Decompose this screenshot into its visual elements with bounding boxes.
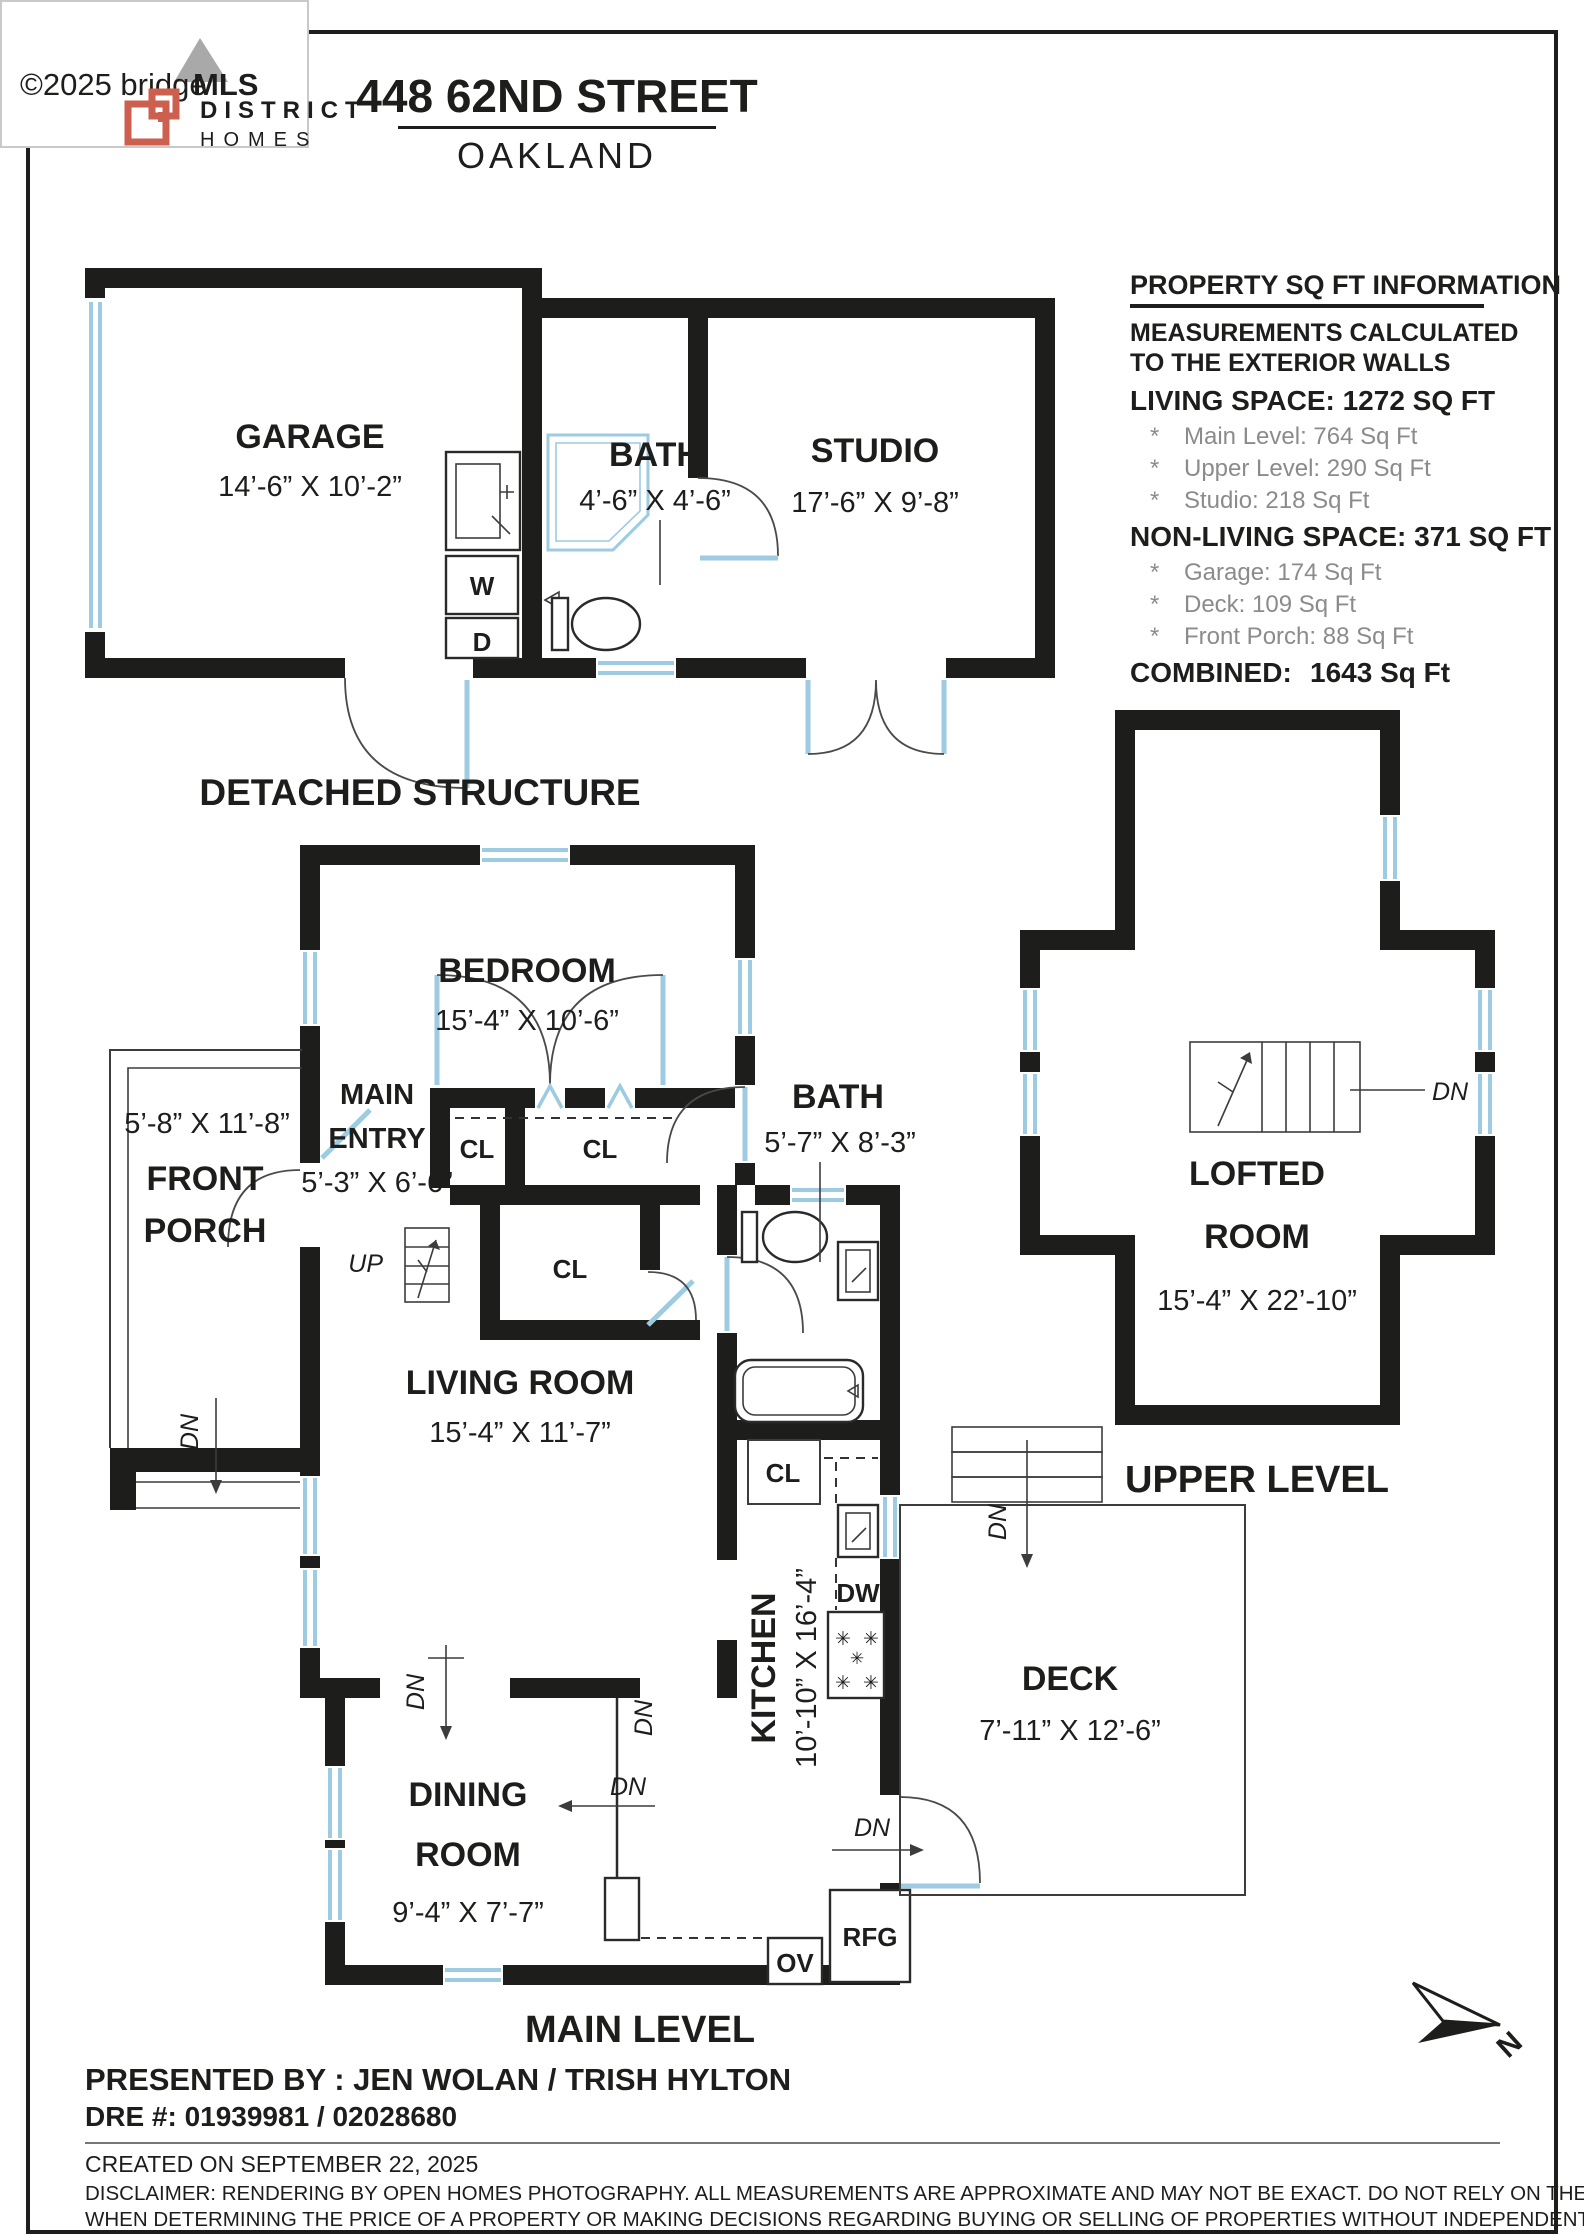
brand-name: DISTRICT [200, 97, 367, 124]
living-dn-label: DN [402, 1673, 430, 1710]
living-space-title: LIVING SPACE: 1272 SQ FT [1130, 385, 1495, 416]
garage-dims: 14’-6” X 10’-2” [218, 471, 402, 503]
detached-bath-name: BATH [609, 436, 701, 474]
nonliving-item: Front Porch: 88 Sq Ft [1184, 623, 1414, 650]
created-on: CREATED ON SEPTEMBER 22, 2025 [85, 2151, 478, 2177]
svg-text:✳: ✳ [863, 1672, 879, 1694]
lofted-room-dims: 15’-4” X 22’-10” [1157, 1285, 1357, 1317]
dre-number: DRE #: 01939981 / 02028680 [85, 2101, 457, 2132]
bullet: * [1150, 487, 1159, 514]
toilet-icon [552, 598, 640, 650]
north-arrow-icon: N [1413, 1983, 1529, 2064]
up-label: UP [348, 1250, 383, 1278]
bath-sink-icon [838, 1242, 878, 1300]
porch-dims: 5’-8” X 11’-8” [124, 1108, 289, 1140]
info-note-1: MEASUREMENTS CALCULATED [1130, 319, 1518, 347]
studio-dims: 17’-6” X 9’-8” [791, 487, 959, 519]
svg-text:✳: ✳ [850, 1649, 864, 1669]
page-subtitle: OAKLAND [457, 135, 657, 176]
porch-name-2: PORCH [144, 1212, 267, 1250]
dishwasher-label: DW [836, 1578, 880, 1608]
kitchen-step-dn-label: DN [630, 1699, 658, 1736]
dining-dn-label: DN [610, 1773, 647, 1801]
dining-name-2: ROOM [415, 1836, 521, 1874]
porch-dn-label: DN [176, 1413, 204, 1450]
bathtub-icon [735, 1360, 863, 1422]
footer: PRESENTED BY : JEN WOLAN / TRISH HYLTON … [85, 2062, 1584, 2231]
bullet: * [1150, 591, 1159, 618]
info-title-underline [1130, 304, 1484, 308]
entry-stair-icon [405, 1228, 449, 1302]
upper-dn-label: DN [1432, 1078, 1469, 1106]
main-level-plan: ✳ ✳ ✳ ✳ ✳ [110, 845, 1245, 2051]
deck-name: DECK [1022, 1660, 1119, 1698]
living-item: Main Level: 764 Sq Ft [1184, 423, 1418, 450]
lofted-room-name-1: LOFTED [1189, 1155, 1325, 1193]
closet-door-arc [648, 1272, 696, 1320]
bullet: * [1150, 423, 1159, 450]
main-bath-name: BATH [792, 1078, 884, 1116]
entry-name-1: MAIN [340, 1079, 414, 1111]
laundry-sink-icon [446, 452, 520, 550]
footer-divider [85, 2142, 1500, 2144]
bridgemls-watermark: ©2025 bridge MLS [1, 1, 308, 147]
svg-text:✳: ✳ [835, 1672, 851, 1694]
nonliving-item: Garage: 174 Sq Ft [1184, 559, 1382, 586]
combined-value: 1643 Sq Ft [1310, 657, 1450, 688]
closet-label: CL [583, 1134, 618, 1164]
closet-label: CL [553, 1254, 588, 1284]
upper-level-plan: DN LOFTED ROOM 15’-4” X 22’-10” UPPER LE… [1020, 710, 1495, 1501]
main-level-caption: MAIN LEVEL [525, 2009, 755, 2051]
dining-dims: 9’-4” X 7’-7” [392, 1897, 544, 1929]
north-label: N [1491, 2025, 1529, 2064]
deck-dims: 7’-11” X 12’-6” [979, 1715, 1161, 1747]
detached-structure-plan: W D GARAGE 14’-6” X 10’-2” BATH 4’-6” X … [85, 268, 1055, 813]
svg-text:✳: ✳ [835, 1628, 851, 1650]
bath-door-arc [727, 1257, 803, 1333]
living-item: Upper Level: 290 Sq Ft [1184, 455, 1431, 482]
entry-dims: 5’-3” X 6’-6” [301, 1167, 453, 1199]
upper-level-caption: UPPER LEVEL [1125, 1459, 1389, 1501]
kitchen-sink-icon [838, 1505, 878, 1557]
closet-label: CL [766, 1458, 801, 1488]
svg-text:✳: ✳ [863, 1628, 879, 1650]
pony-wall [605, 1878, 639, 1940]
lofted-room-name-2: ROOM [1204, 1218, 1310, 1256]
detached-bath-dims: 4’-6” X 4’-6” [579, 485, 731, 517]
combined-label: COMBINED: [1130, 657, 1292, 688]
upper-walls [1020, 710, 1495, 1425]
entry-name-2: ENTRY [328, 1123, 425, 1155]
disclaimer-line-1: DISCLAIMER: RENDERING BY OPEN HOMES PHOT… [85, 2182, 1584, 2205]
bullet: * [1150, 559, 1159, 586]
bullet: * [1150, 455, 1159, 482]
bedroom-dims: 15’-4” X 10’-6” [435, 1005, 619, 1037]
info-title: PROPERTY SQ FT INFORMATION [1130, 270, 1561, 300]
bullet: * [1150, 623, 1159, 650]
oven-label: OV [776, 1948, 814, 1978]
studio-french-doors [808, 680, 944, 754]
living-dims: 15’-4” X 11’-7” [429, 1417, 611, 1449]
stove-icon: ✳ ✳ ✳ ✳ ✳ [828, 1612, 884, 1698]
upper-stairs-icon [1190, 1042, 1425, 1132]
porch-name-1: FRONT [146, 1160, 263, 1198]
living-item: Studio: 218 Sq Ft [1184, 487, 1370, 514]
detached-caption: DETACHED STRUCTURE [199, 772, 640, 813]
studio-name: STUDIO [811, 432, 939, 470]
upper-windows [1020, 815, 1495, 1136]
nonliving-space-title: NON-LIVING SPACE: 371 SQ FT [1130, 521, 1551, 552]
dining-name-1: DINING [409, 1776, 528, 1814]
toilet-icon [742, 1212, 827, 1262]
kitchen-dims: 10’-10” X 16’-4” [791, 1568, 823, 1768]
washer-label: W [470, 571, 495, 601]
closet-label: CL [460, 1134, 495, 1164]
info-note-2: TO THE EXTERIOR WALLS [1130, 349, 1450, 377]
page-title: 448 62ND STREET [356, 70, 757, 122]
nonliving-item: Deck: 109 Sq Ft [1184, 591, 1356, 618]
deck-door-dn-label: DN [854, 1814, 891, 1842]
presented-by: PRESENTED BY : JEN WOLAN / TRISH HYLTON [85, 2062, 791, 2097]
main-bath-dims: 5’-7” X 8’-3” [764, 1127, 916, 1159]
title-underline [398, 126, 716, 129]
brand-sub: HOMES [200, 129, 318, 151]
floorplan-flyer-page: ©2025 bridge MLS DISTRICT HOMES 448 62ND… [0, 0, 1584, 2240]
disclaimer-line-2: WHEN DETERMINING THE PRICE OF A PROPERTY… [85, 2208, 1584, 2231]
fridge-label: RFG [843, 1922, 898, 1952]
dryer-label: D [473, 627, 492, 657]
garage-name: GARAGE [235, 418, 384, 456]
deck-door-arc [900, 1797, 980, 1883]
kitchen-name: KITCHEN [745, 1592, 783, 1743]
deck-steps-dn-label: DN [984, 1503, 1012, 1540]
living-name: LIVING ROOM [406, 1364, 635, 1402]
sqft-info-panel: PROPERTY SQ FT INFORMATION MEASUREMENTS … [1130, 270, 1561, 688]
bedroom-name: BEDROOM [438, 952, 616, 990]
